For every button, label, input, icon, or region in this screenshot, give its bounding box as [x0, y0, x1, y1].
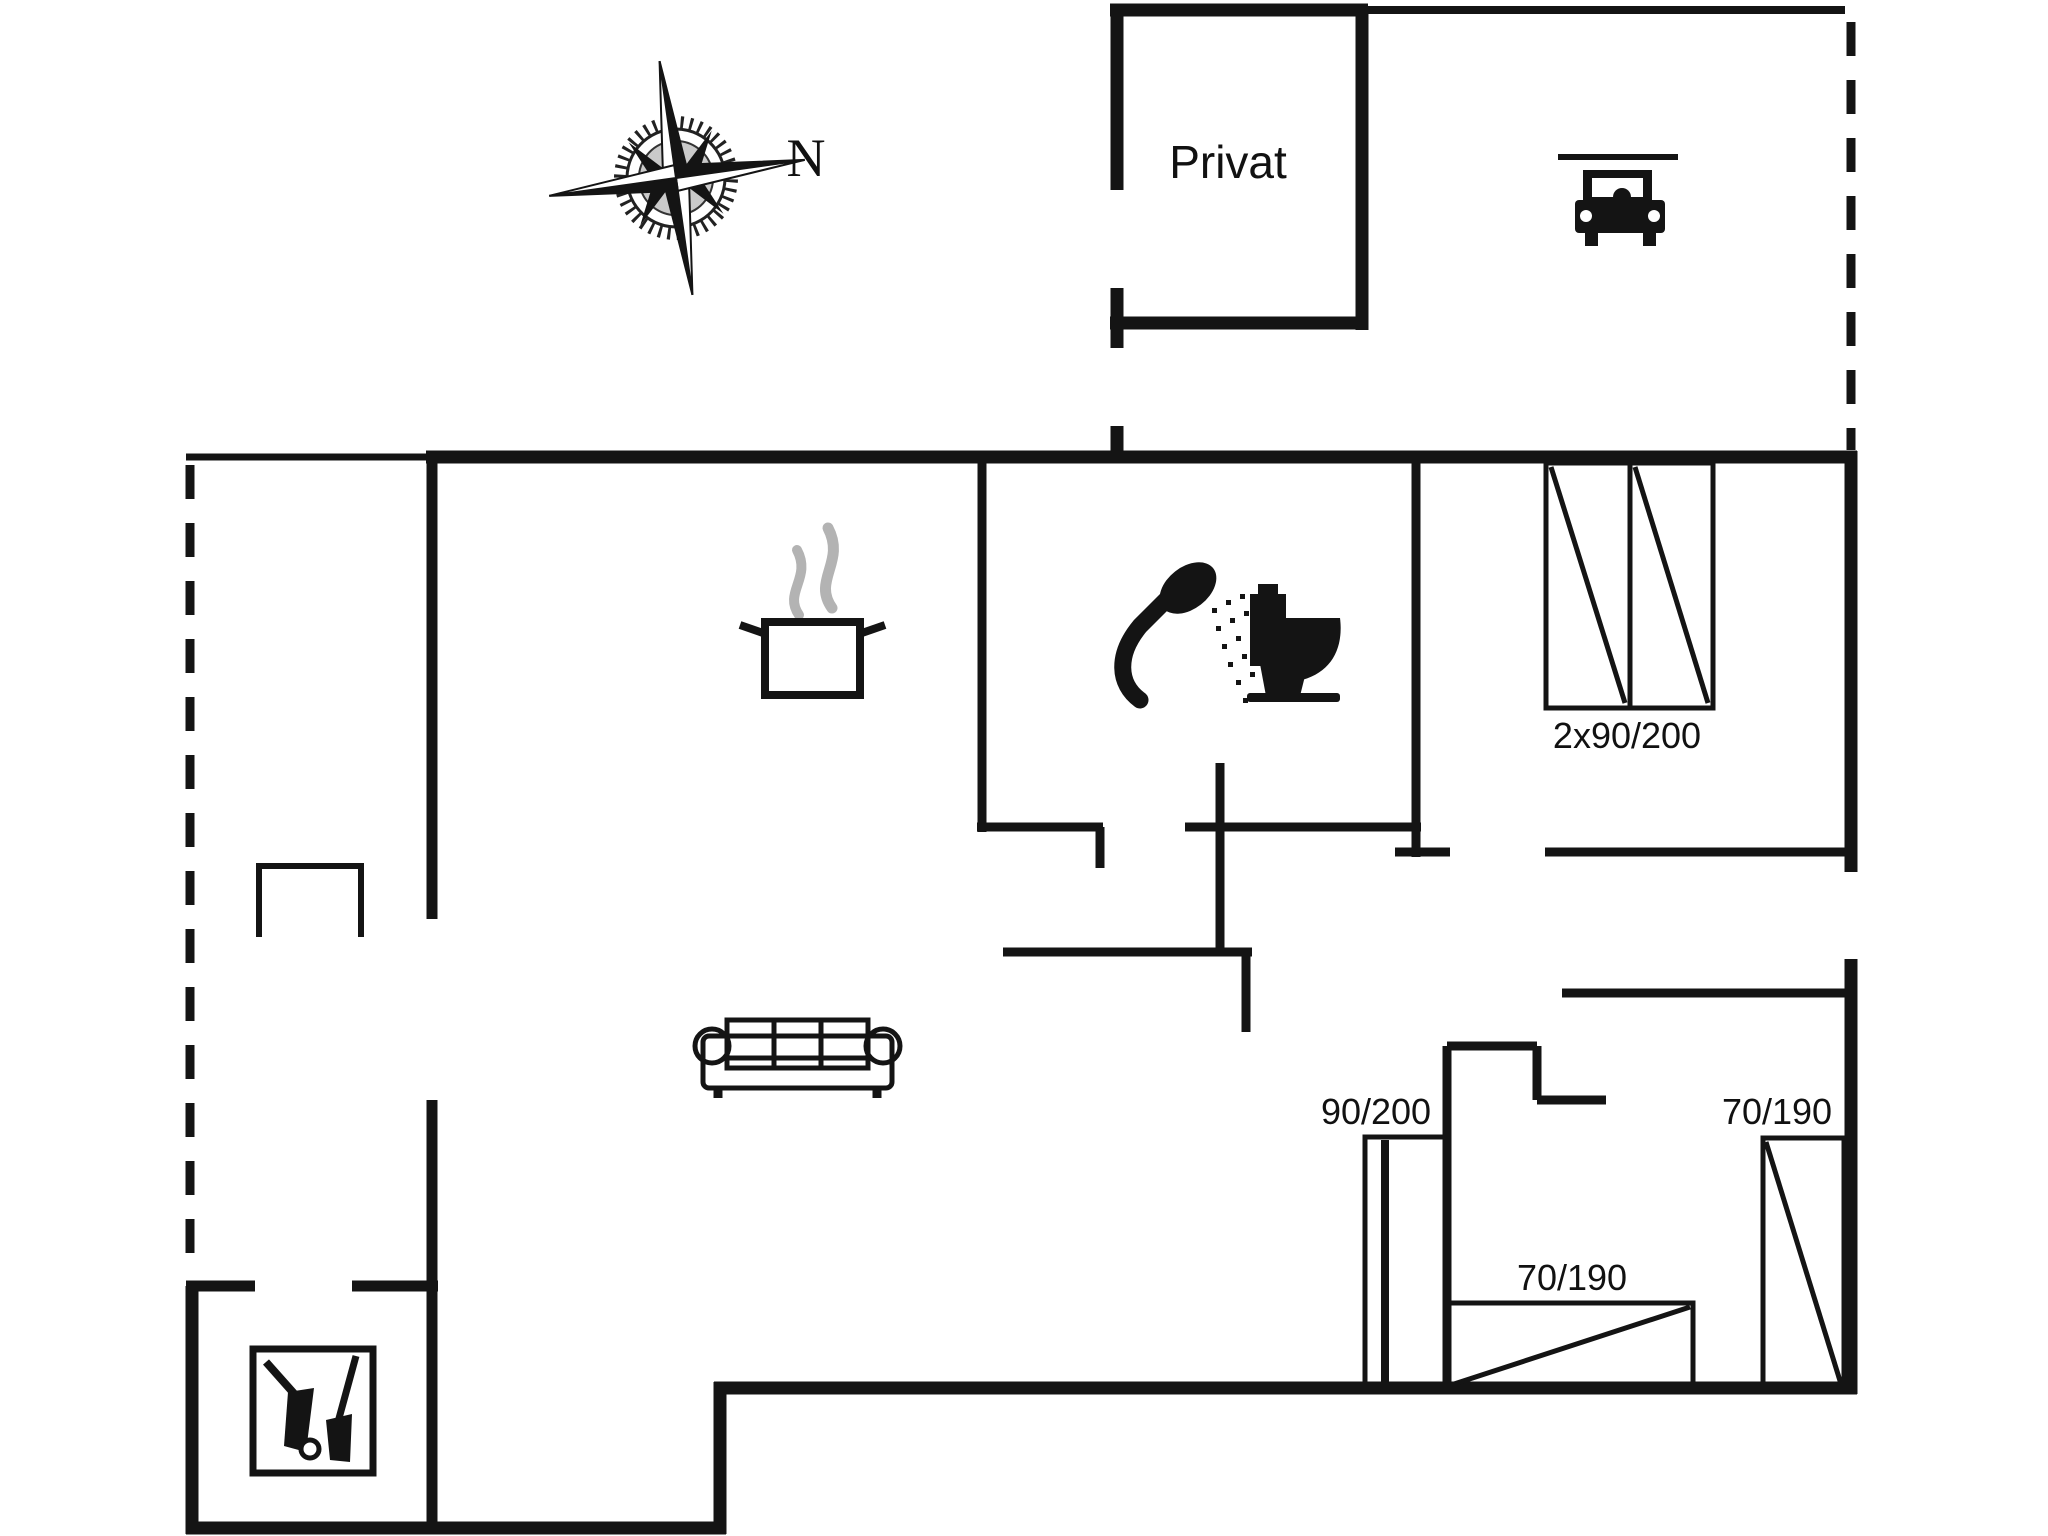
car-headlight-right [1648, 210, 1660, 222]
right-bed-diagonal [1766, 1142, 1841, 1384]
floor-plan-page: Privat N 2x90/200 90/200 70/190 70/190 [0, 0, 2048, 1536]
toilet-base [1260, 664, 1308, 696]
window-niche [259, 866, 361, 937]
annex-label: Privat [1169, 136, 1287, 188]
double-bed-symbol [1546, 463, 1713, 708]
toilet-icon [1247, 584, 1341, 702]
bed-hall-label: 90/200 [1321, 1091, 1431, 1132]
sofa-icon [695, 1020, 900, 1098]
bed-left-diagonal [1551, 467, 1625, 703]
steam-left [794, 550, 801, 615]
toilet-foot [1247, 693, 1340, 702]
stove-tool-broom-head [326, 1414, 352, 1462]
right-bed-symbol [1763, 1138, 1844, 1388]
wood-stove-icon [253, 1349, 373, 1473]
sofa-cushions [727, 1020, 868, 1068]
middle-bed-diagonal [1451, 1307, 1690, 1385]
hall-bed-rect [1365, 1137, 1447, 1388]
bedroom-double-beds-label: 2x90/200 [1553, 715, 1701, 756]
middle-bed-symbol [1447, 1303, 1693, 1388]
shower-hose [1123, 598, 1168, 700]
pot-body [765, 622, 860, 695]
car-wheel-left [1585, 233, 1598, 246]
cooking-pot-icon [740, 528, 885, 695]
bed-right-diagonal [1635, 467, 1708, 703]
compass-north-label: N [787, 128, 826, 188]
car-wheel-right [1643, 233, 1656, 246]
steam-right [825, 528, 833, 608]
bed-right-label: 70/190 [1722, 1091, 1832, 1132]
bed-middle-label: 70/190 [1517, 1257, 1627, 1298]
floor-plan-drawing: Privat N 2x90/200 90/200 70/190 70/190 [0, 0, 2048, 1536]
hall-bed-symbol [1365, 1137, 1447, 1388]
toilet-tank [1250, 594, 1286, 666]
car-icon [1558, 157, 1678, 246]
stove-tool-ring [301, 1440, 319, 1458]
interior-walls [977, 457, 1851, 1390]
compass-rose-icon [533, 43, 821, 313]
car-headlight-left [1580, 210, 1592, 222]
compass-cardinal-points [533, 43, 821, 313]
